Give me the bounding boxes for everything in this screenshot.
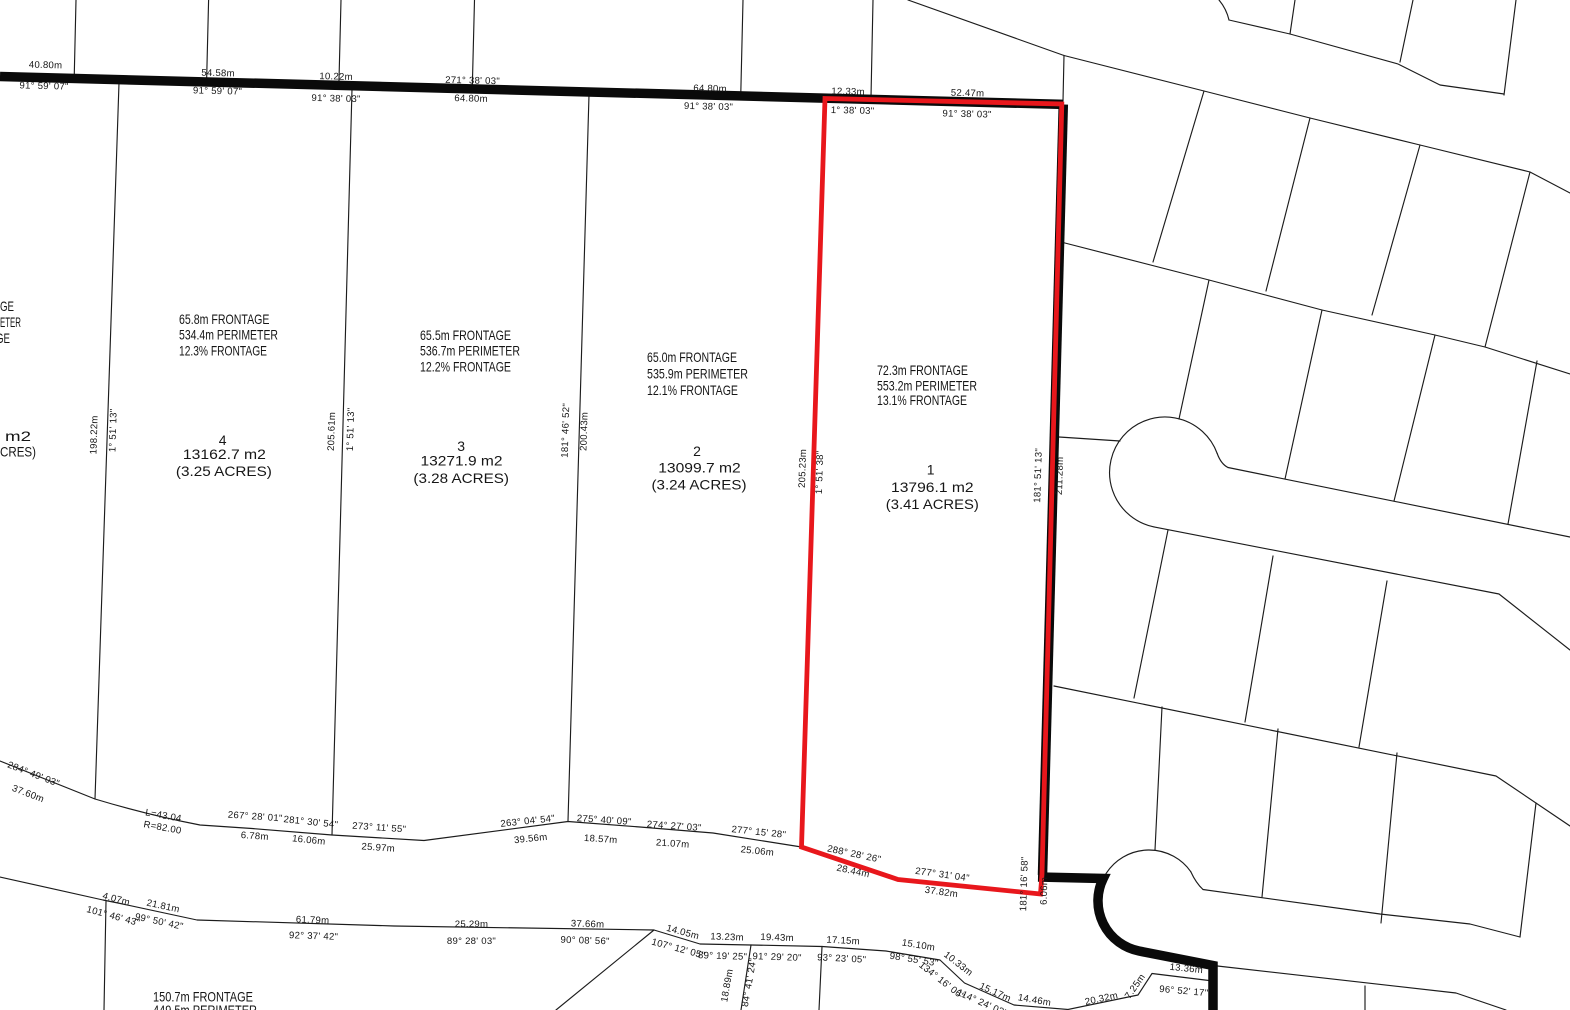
svg-text:1° 38' 03": 1° 38' 03" [831, 105, 875, 117]
svg-text:12.33m: 12.33m [831, 86, 865, 98]
svg-text:449.5m PERIMETER: 449.5m PERIMETER [153, 1002, 257, 1010]
svg-text:6.78m: 6.78m [240, 830, 269, 843]
svg-text:92° 37' 42": 92° 37' 42" [289, 930, 339, 943]
svg-text:21.07m: 21.07m [656, 837, 690, 850]
svg-text:54.58m: 54.58m [201, 68, 235, 80]
svg-text:13271.9 m2: 13271.9 m2 [421, 453, 503, 469]
svg-text:13796.1 m2: 13796.1 m2 [891, 479, 974, 495]
svg-text:12.2% FRONTAGE: 12.2% FRONTAGE [420, 359, 511, 375]
svg-text:CRES): CRES) [0, 444, 36, 460]
svg-text:198.22m: 198.22m [88, 415, 100, 454]
svg-text:13.23m: 13.23m [710, 931, 744, 943]
svg-text:91° 59' 07": 91° 59' 07" [193, 85, 242, 97]
svg-text:89° 19' 25": 89° 19' 25" [698, 950, 748, 963]
svg-text:536.7m PERIMETER: 536.7m PERIMETER [420, 343, 520, 359]
svg-text:61.79m: 61.79m [296, 914, 330, 926]
svg-text:65.0m FRONTAGE: 65.0m FRONTAGE [647, 349, 737, 365]
svg-text:200.43m: 200.43m [578, 412, 590, 451]
svg-text:181° 46' 52": 181° 46' 52" [560, 403, 573, 458]
svg-text:534.4m PERIMETER: 534.4m PERIMETER [179, 327, 278, 343]
svg-text:19.43m: 19.43m [760, 932, 794, 944]
svg-text:1° 51' 13": 1° 51' 13" [107, 408, 119, 452]
svg-text:91° 59' 07": 91° 59' 07" [19, 80, 68, 92]
svg-text:91° 38' 03": 91° 38' 03" [684, 101, 733, 113]
svg-text:37.66m: 37.66m [571, 918, 605, 930]
svg-text:ETER: ETER [0, 314, 21, 330]
svg-text:3: 3 [457, 438, 465, 454]
svg-text:91° 38' 03": 91° 38' 03" [311, 93, 360, 105]
svg-text:1: 1 [927, 462, 935, 478]
svg-text:271° 38' 03": 271° 38' 03" [445, 75, 500, 87]
svg-text:25.29m: 25.29m [455, 919, 489, 930]
svg-text:64.80m: 64.80m [454, 93, 488, 105]
svg-text:13.1% FRONTAGE: 13.1% FRONTAGE [877, 392, 967, 408]
svg-text:1° 51' 38": 1° 51' 38" [814, 450, 826, 494]
svg-text:GE: GE [0, 330, 10, 346]
svg-text:18.57m: 18.57m [584, 833, 618, 846]
svg-text:25.97m: 25.97m [361, 841, 395, 854]
svg-text:(3.28 ACRES): (3.28 ACRES) [413, 470, 509, 486]
svg-text:211.28m: 211.28m [1054, 457, 1066, 496]
svg-text:65.5m FRONTAGE: 65.5m FRONTAGE [420, 327, 511, 343]
svg-text:181° 51' 13": 181° 51' 13" [1032, 448, 1045, 503]
svg-text:(3.41 ACRES): (3.41 ACRES) [886, 496, 979, 512]
svg-text:13099.7 m2: 13099.7 m2 [658, 460, 741, 476]
svg-text:6.06m: 6.06m [1039, 877, 1051, 905]
svg-text:89° 28' 03": 89° 28' 03" [447, 936, 496, 947]
svg-text:1° 51' 13": 1° 51' 13" [345, 407, 357, 451]
svg-text:181° 16' 58": 181° 16' 58" [1018, 856, 1031, 911]
svg-text:12.3% FRONTAGE: 12.3% FRONTAGE [179, 343, 267, 359]
svg-text:2: 2 [693, 443, 701, 459]
svg-text:91° 38' 03": 91° 38' 03" [942, 108, 991, 120]
svg-text:72.3m FRONTAGE: 72.3m FRONTAGE [877, 362, 968, 378]
svg-text:13162.7 m2: 13162.7 m2 [183, 446, 266, 462]
svg-text:91° 29' 20": 91° 29' 20" [752, 951, 802, 964]
svg-text:205.23m: 205.23m [797, 449, 809, 488]
svg-text:205.61m: 205.61m [326, 412, 338, 451]
svg-text:(3.24 ACRES): (3.24 ACRES) [652, 477, 747, 493]
svg-text:52.47m: 52.47m [951, 88, 985, 100]
svg-text:12.1% FRONTAGE: 12.1% FRONTAGE [647, 382, 738, 398]
svg-text:65.8m FRONTAGE: 65.8m FRONTAGE [179, 311, 270, 327]
svg-text:40.80m: 40.80m [29, 60, 63, 72]
svg-text:17.15m: 17.15m [826, 935, 860, 948]
svg-text:(3.25 ACRES): (3.25 ACRES) [176, 463, 272, 479]
svg-text:535.9m PERIMETER: 535.9m PERIMETER [647, 366, 748, 382]
svg-text:GE: GE [0, 298, 14, 314]
svg-text:90° 08' 56": 90° 08' 56" [560, 935, 610, 948]
svg-text:10.22m: 10.22m [319, 71, 353, 83]
svg-text:64.80m: 64.80m [693, 83, 727, 95]
svg-text:m2: m2 [5, 428, 31, 444]
